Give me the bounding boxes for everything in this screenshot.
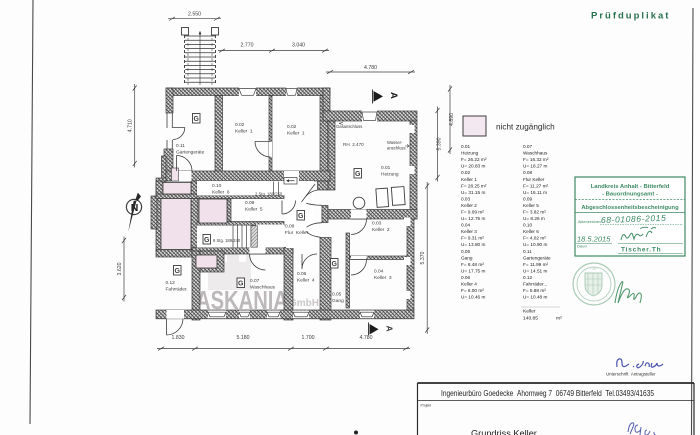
- svg-text:Unterschrift Antragsteller: Unterschrift Antragsteller: [606, 372, 656, 377]
- svg-text:0.06: 0.06: [297, 271, 307, 277]
- svg-text:2 Stg. 180/250: 2 Stg. 180/250: [255, 192, 283, 197]
- svg-text:4.780: 4.780: [360, 335, 373, 341]
- svg-text:Waschhaus: Waschhaus: [250, 285, 275, 291]
- svg-text:Grundriss Keller: Grundriss Keller: [471, 429, 537, 435]
- svg-text:A: A: [385, 326, 395, 332]
- svg-text:GmbH: GmbH: [289, 298, 319, 309]
- svg-text:RH 2.470: RH 2.470: [343, 142, 364, 147]
- svg-text:0.02: 0.02: [287, 124, 297, 130]
- svg-text:G: G: [194, 116, 200, 123]
- svg-text:0.10: 0.10: [212, 183, 222, 189]
- svg-text:6 Stg. 189/240: 6 Stg. 189/240: [213, 238, 241, 243]
- svg-text:4.890: 4.890: [449, 113, 455, 126]
- svg-text:Projekt: Projekt: [421, 404, 432, 408]
- svg-text:- Bauordnungsamt -: - Bauordnungsamt -: [602, 192, 658, 198]
- svg-text:0.02: 0.02: [235, 122, 245, 128]
- svg-text:5.370: 5.370: [420, 251, 426, 264]
- svg-text:Keller 4: Keller 4: [297, 278, 315, 284]
- svg-text:5.390: 5.390: [437, 137, 443, 150]
- svg-text:0.01: 0.01: [381, 165, 391, 171]
- svg-text:Flur Keller: Flur Keller: [285, 230, 309, 236]
- svg-text:G: G: [175, 268, 181, 275]
- svg-text:0.11: 0.11: [176, 143, 185, 149]
- svg-text:Tischer.Th: Tischer.Th: [621, 247, 661, 254]
- svg-text:0.07: 0.07: [250, 278, 260, 284]
- svg-text:Gang: Gang: [332, 298, 344, 304]
- svg-text:1.830: 1.830: [172, 335, 185, 341]
- svg-text:Keller 5: Keller 5: [245, 207, 263, 213]
- svg-text:A: A: [388, 92, 399, 99]
- svg-text:Keller 3: Keller 3: [374, 275, 392, 281]
- svg-text:G: G: [238, 281, 244, 288]
- svg-text:Prüfduplikat: Prüfduplikat: [591, 11, 670, 22]
- svg-text:3.620: 3.620: [117, 262, 123, 275]
- svg-text:Landkreis Anhalt - Bitterfeld: Landkreis Anhalt - Bitterfeld: [591, 184, 670, 190]
- svg-text:Wasser-: Wasser-: [387, 140, 403, 145]
- svg-text:Keller 2: Keller 2: [372, 227, 390, 233]
- svg-text:Keller 6: Keller 6: [212, 190, 230, 196]
- svg-text:0.09: 0.09: [245, 200, 255, 206]
- svg-text:G: G: [204, 237, 210, 244]
- svg-text:0.12: 0.12: [166, 280, 176, 286]
- svg-text:Gartengeräte: Gartengeräte: [176, 150, 205, 156]
- svg-text:G: G: [298, 213, 304, 220]
- svg-text:nicht zugänglich: nicht zugänglich: [496, 123, 555, 132]
- svg-text:0.04: 0.04: [374, 269, 384, 275]
- svg-text:4.710: 4.710: [128, 119, 134, 132]
- svg-text:G: G: [332, 261, 338, 268]
- svg-text:anschluss: anschluss: [387, 146, 406, 151]
- svg-text:* 18 *: * 18 *: [590, 267, 599, 271]
- svg-text:5.180: 5.180: [237, 335, 250, 341]
- svg-text:2.550: 2.550: [188, 12, 201, 18]
- svg-text:2.770: 2.770: [241, 43, 254, 49]
- svg-text:Ingenieurbüro Goedecke Ahornw: Ingenieurbüro Goedecke Ahornweg 7 06749 …: [441, 389, 654, 398]
- svg-text:0.03: 0.03: [372, 221, 382, 227]
- svg-text:Fahrräder.: Fahrräder.: [166, 287, 188, 293]
- svg-text:0.08: 0.08: [285, 224, 295, 230]
- svg-text:Datum: Datum: [577, 245, 587, 249]
- svg-text:Heizung: Heizung: [381, 172, 399, 178]
- svg-text:Keller 1: Keller 1: [287, 131, 305, 137]
- svg-text:1.700: 1.700: [302, 335, 315, 341]
- svg-text:3.040: 3.040: [292, 43, 305, 49]
- svg-text:Keller 1: Keller 1: [235, 129, 253, 135]
- svg-text:18.5.2015: 18.5.2015: [577, 235, 611, 244]
- svg-text:G: G: [355, 171, 361, 178]
- svg-text:Aktenzeichen:: Aktenzeichen:: [578, 220, 602, 224]
- svg-text:0.05: 0.05: [332, 292, 342, 298]
- svg-text:4.780: 4.780: [364, 65, 377, 71]
- svg-text:Gasanschluss: Gasanschluss: [336, 124, 362, 129]
- svg-text:Abgeschlossenheitsbescheinigun: Abgeschlossenheitsbescheinigung: [581, 205, 679, 211]
